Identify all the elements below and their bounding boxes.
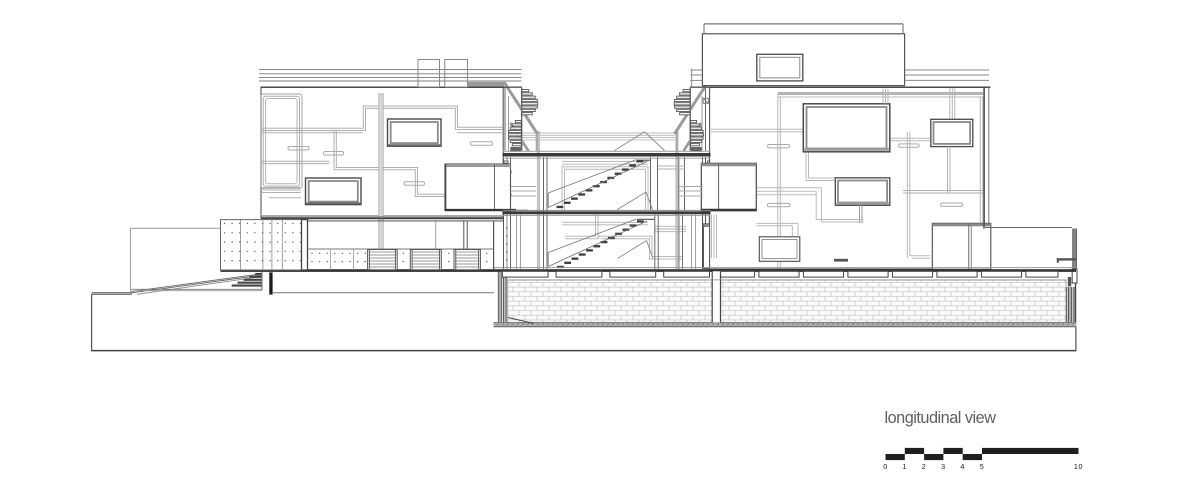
svg-text:5: 5 bbox=[980, 462, 985, 471]
svg-text:longitudinal view: longitudinal view bbox=[885, 409, 997, 427]
svg-text:2: 2 bbox=[922, 462, 927, 471]
svg-text:4: 4 bbox=[960, 462, 965, 471]
svg-text:3: 3 bbox=[941, 462, 946, 471]
svg-text:1: 1 bbox=[902, 462, 907, 471]
svg-text:0: 0 bbox=[883, 462, 888, 471]
svg-text:10: 10 bbox=[1074, 462, 1083, 471]
